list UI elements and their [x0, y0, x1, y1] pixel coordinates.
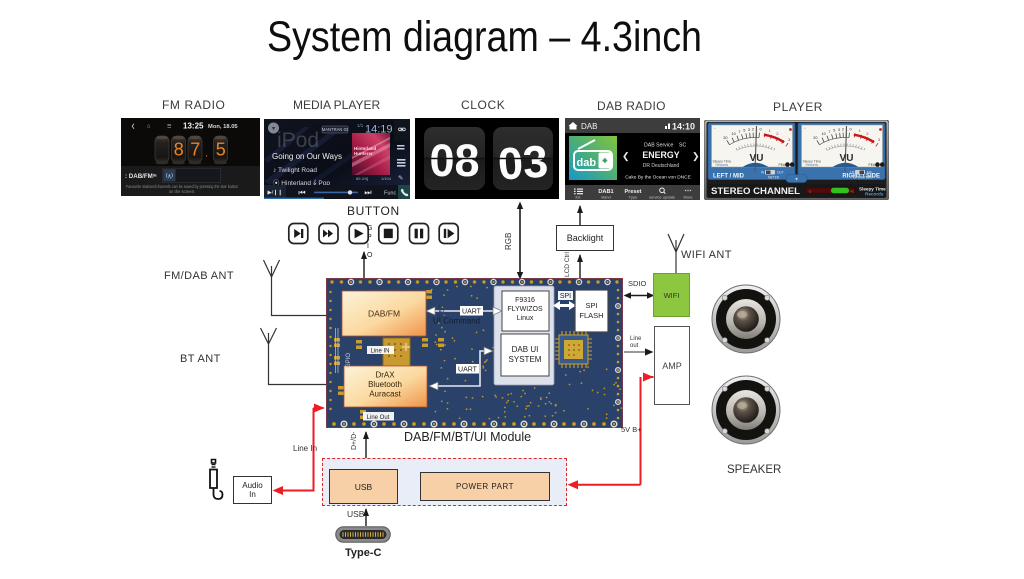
- svg-text:Bluetooth: Bluetooth: [368, 380, 402, 389]
- svg-text:DrAX: DrAX: [375, 371, 395, 380]
- svg-text:SPI: SPI: [585, 301, 597, 310]
- svg-text:UART: UART: [458, 367, 478, 374]
- svg-text:Line Out: Line Out: [367, 415, 390, 421]
- svg-text:Linux: Linux: [517, 315, 534, 322]
- svg-text:SPI: SPI: [560, 293, 571, 300]
- svg-text:DAB UI: DAB UI: [512, 345, 539, 354]
- svg-text:0.5T: 0.5T: [439, 303, 446, 318]
- svg-text:DAB/FM: DAB/FM: [368, 309, 400, 319]
- svg-text:F9316: F9316: [515, 297, 535, 304]
- svg-text:FLASH: FLASH: [579, 311, 603, 320]
- svg-text:Auracast: Auracast: [369, 390, 401, 399]
- svg-text:GPIO: GPIO: [346, 353, 352, 368]
- svg-text:FLYWIZOS: FLYWIZOS: [507, 306, 543, 313]
- svg-text:SYSTEM: SYSTEM: [509, 355, 542, 364]
- svg-text:Line IN: Line IN: [370, 349, 389, 355]
- svg-text:UART: UART: [462, 309, 482, 316]
